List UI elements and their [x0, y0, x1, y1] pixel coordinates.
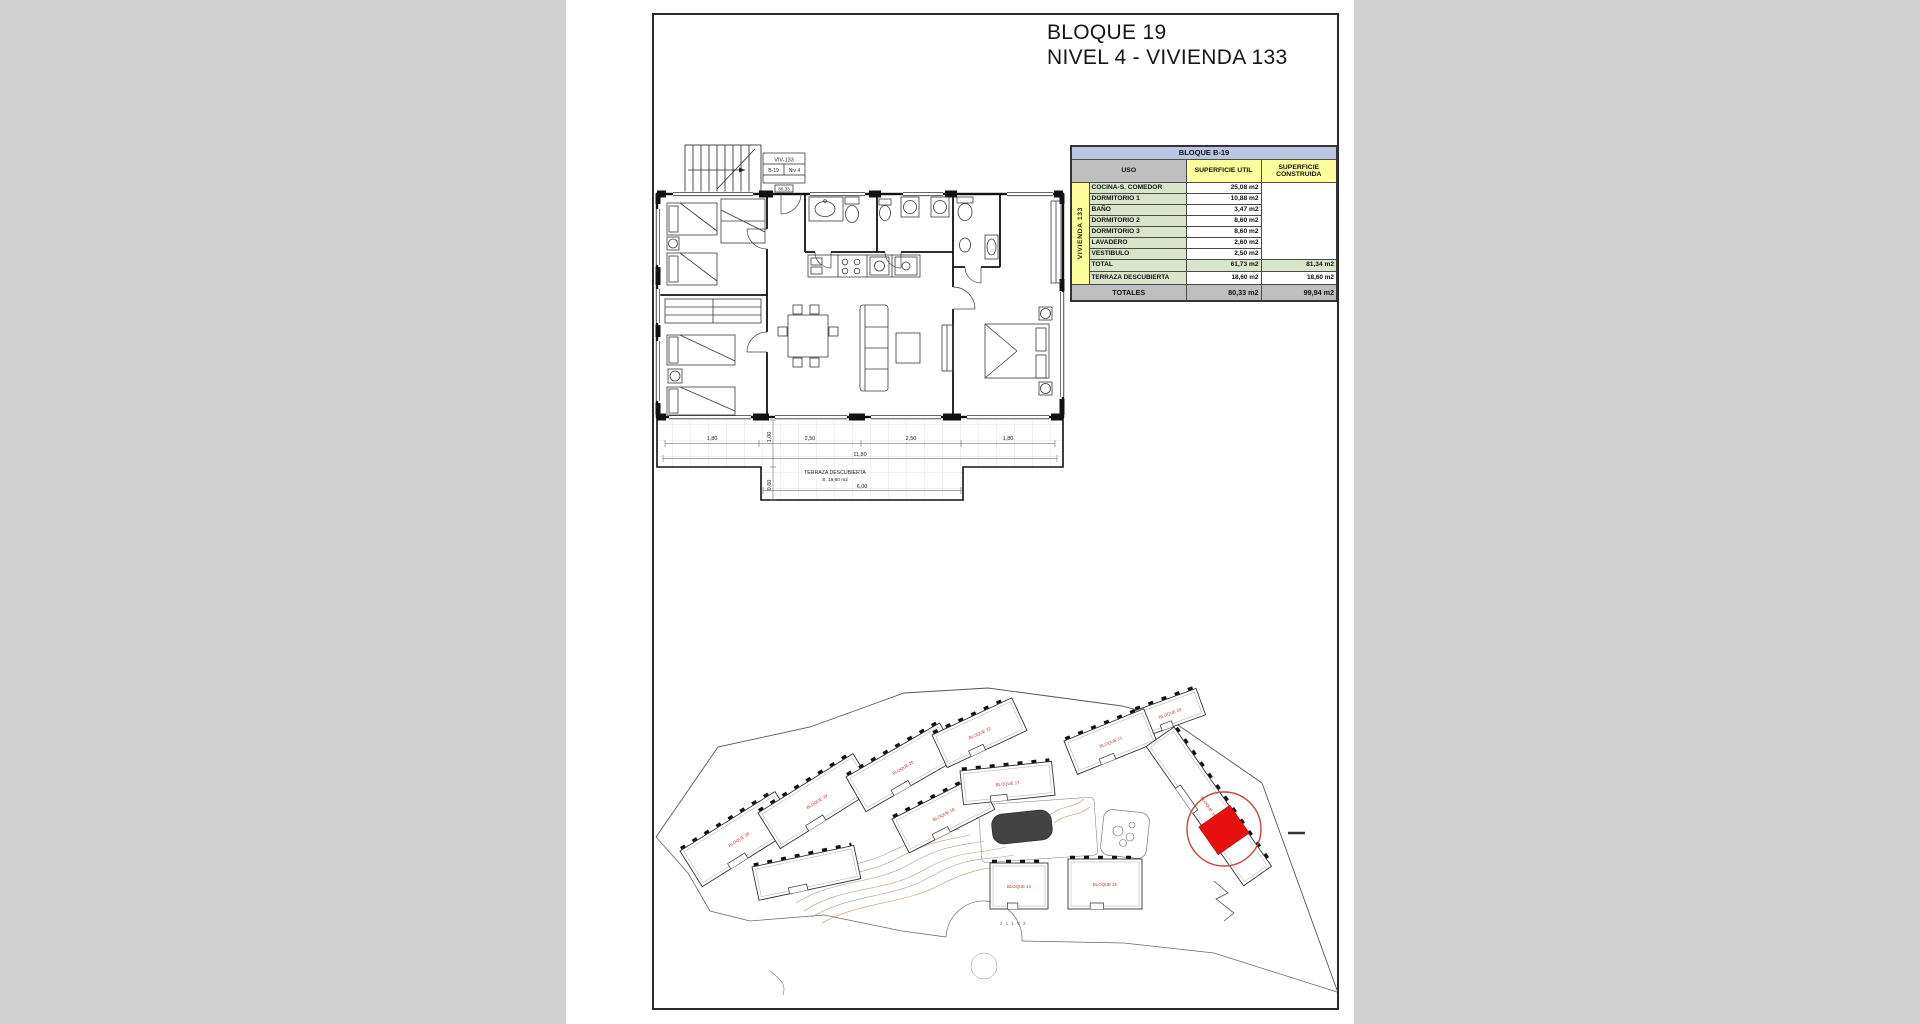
table-row-value: 2,60 m2: [1186, 238, 1261, 249]
total-util: 61,73 m2: [1186, 260, 1261, 272]
terraza-util: 18,60 m2: [1186, 272, 1261, 285]
site-building: BLOQUE 19: [1146, 726, 1273, 886]
site-building-label: BLOQUE 15: [1093, 882, 1117, 887]
table-title: BLOQUE B-19: [1071, 146, 1337, 160]
floor-plan: VIV-133 B-19 Niv 4 80,33: [655, 137, 1090, 522]
site-building: BLOQUE 17: [960, 760, 1055, 805]
terrace-dim: 2,50: [906, 436, 917, 442]
site-footnote: 2 1 1 V 2: [1000, 921, 1027, 926]
terraza-construida: 18,60 m2: [1261, 272, 1337, 285]
terrace-dim-left: 0,60: [767, 480, 773, 491]
table-row-value: 25,08 m2: [1186, 183, 1261, 194]
site-building: BLOQUE 14: [990, 861, 1048, 909]
table-row-label: VESTIBULO: [1089, 249, 1186, 260]
site-building: [752, 844, 861, 901]
table-row-label: LAVADERO: [1089, 238, 1186, 249]
terrace-dim: 1,80: [707, 436, 718, 442]
pool-area: [978, 797, 1150, 863]
unit-box-level: Niv 4: [789, 168, 801, 174]
terraza-label: TERRAZA DESCUBIERTA: [1089, 272, 1186, 285]
site-buildings: BLOQUE 28BLOQUE 29BLOQUE 20BLOQUE 22BLOQ…: [679, 687, 1273, 909]
playground: [1100, 809, 1151, 860]
totales-construida: 99,94 m2: [1261, 285, 1337, 302]
title-line-1: BLOQUE 19: [1047, 20, 1307, 45]
unit-label-box: VIV-133 B-19 Niv 4 80,33: [763, 153, 805, 192]
vivienda-strip: VIVIENDA 133: [1071, 183, 1089, 285]
total-label: TOTAL: [1089, 260, 1186, 272]
terrace-label: TERRAZA DESCUBIERTA: [804, 470, 866, 476]
table-row-value: 10,88 m2: [1186, 194, 1261, 205]
table-row-value: 3,47 m2: [1186, 205, 1261, 216]
unit-box-block: B-19: [768, 168, 779, 174]
site-building: BLOQUE 21: [1063, 707, 1157, 774]
title-line-2: NIVEL 4 - VIVIENDA 133: [1047, 45, 1307, 70]
table-row-value: 2,50 m2: [1186, 249, 1261, 260]
document-page: BLOQUE 19 NIVEL 4 - VIVIENDA 133 VIV: [566, 0, 1354, 1024]
staircase: [685, 145, 761, 194]
site-building: BLOQUE 15: [1068, 857, 1142, 909]
table-row-label: DORMITORIO 3: [1089, 227, 1186, 238]
totales-util: 80,33 m2: [1186, 285, 1261, 302]
area-table: BLOQUE B-19 USO SUPERFICIE UTIL SUPERFIC…: [1070, 145, 1338, 302]
terrace-area: S. 18,60 m2: [822, 477, 848, 483]
site-building: BLOQUE 29: [757, 752, 875, 848]
table-row-value: 8,60 m2: [1186, 216, 1261, 227]
terrace-dim-left: 1,00: [767, 432, 773, 443]
desktop-background: { "page": { "background": "#d0d0d0", "ti…: [0, 0, 1920, 1024]
construida-empty: [1261, 183, 1337, 260]
col-header-uso: USO: [1071, 160, 1186, 183]
terrace-dim-total: 11,80: [853, 452, 866, 458]
terrace-dim: 1,80: [1003, 436, 1014, 442]
col-header-construida: SUPERFICIE CONSTRUIDA: [1261, 160, 1337, 183]
terrace: 1,80 2,50 2,50 1,80 11,80 6,00 1,00 0,60…: [657, 417, 1063, 500]
table-row-value: 8,60 m2: [1186, 227, 1261, 238]
unit-box-area: 80,33: [778, 187, 790, 192]
table-row-label: BAÑO: [1089, 205, 1186, 216]
table-row-label: COCINA-S. COMEDOR: [1089, 183, 1186, 194]
title-block: BLOQUE 19 NIVEL 4 - VIVIENDA 133: [1047, 20, 1307, 70]
pool: [991, 809, 1054, 845]
col-header-util: SUPERFICIE UTIL: [1186, 160, 1261, 183]
total-construida: 81,34 m2: [1261, 260, 1337, 272]
terrace-dim: 2,50: [805, 436, 816, 442]
table-row-label: DORMITORIO 1: [1089, 194, 1186, 205]
site-building: BLOQUE 22: [931, 696, 1027, 767]
table-row-label: DORMITORIO 2: [1089, 216, 1186, 227]
terrace-dim-bottom: 6,00: [857, 484, 868, 490]
site-plan: BLOQUE 28BLOQUE 29BLOQUE 20BLOQUE 22BLOQ…: [654, 685, 1338, 995]
unit-box-title: VIV-133: [774, 158, 794, 164]
totales-label: TOTALES: [1071, 285, 1186, 302]
site-building-label: BLOQUE 14: [1007, 884, 1031, 889]
